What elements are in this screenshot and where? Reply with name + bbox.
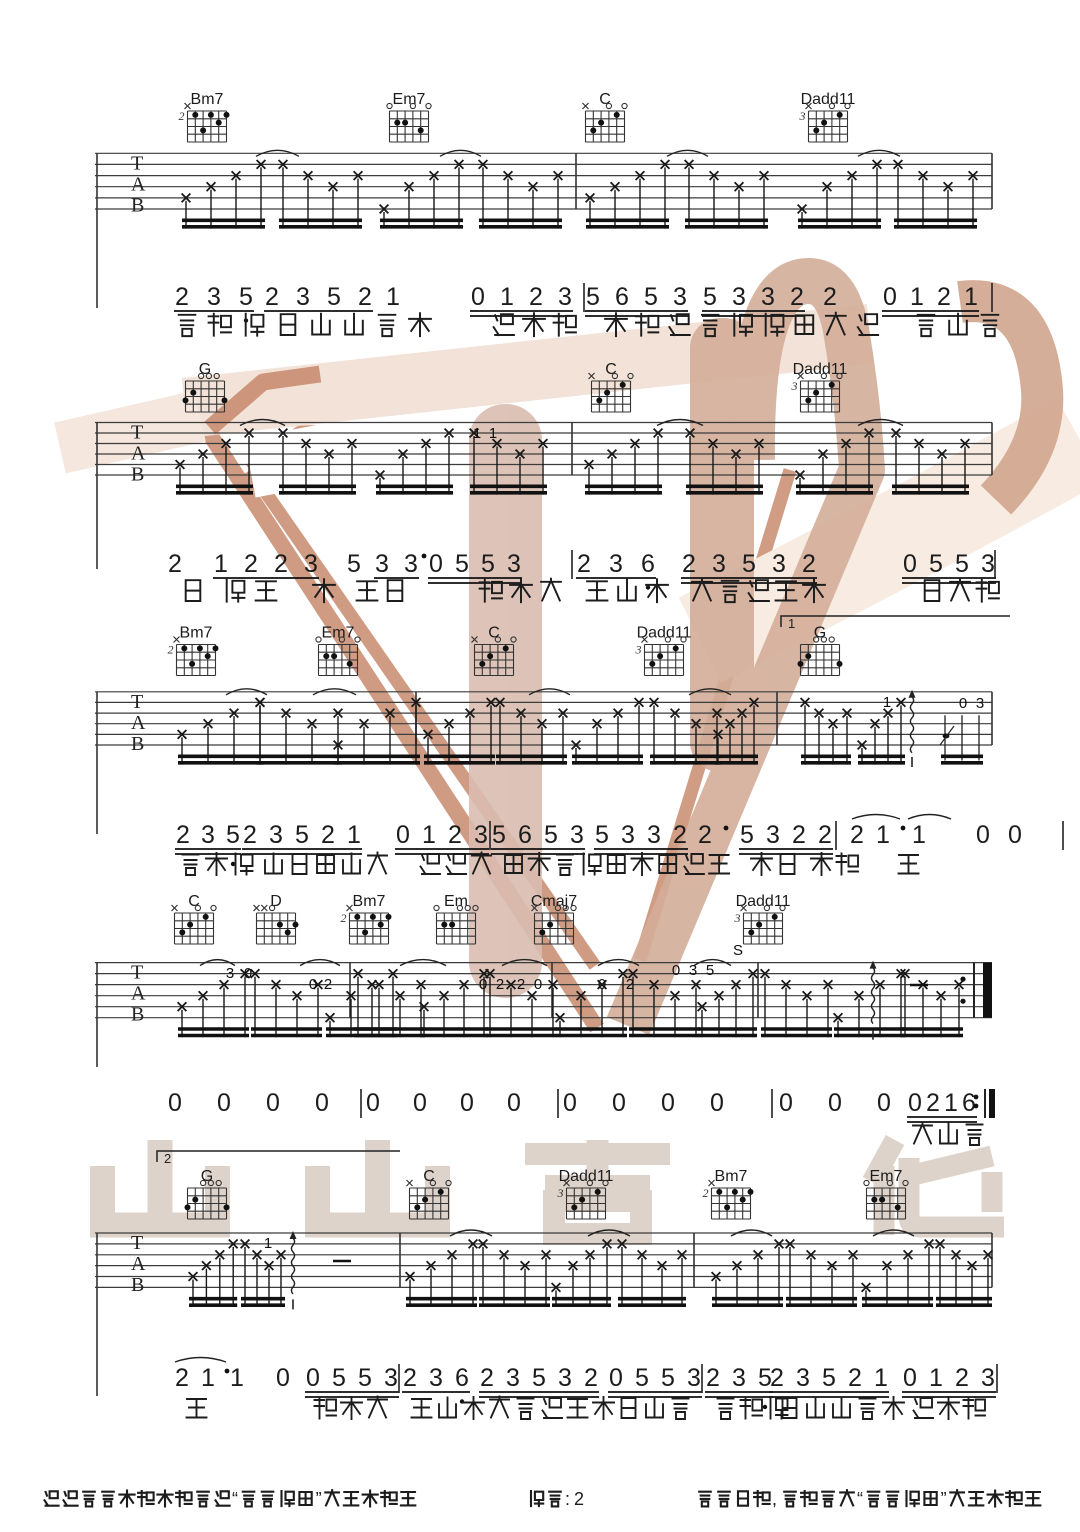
- svg-text:A: A: [131, 1253, 146, 1275]
- svg-text:0: 0: [266, 1089, 280, 1117]
- svg-text:B: B: [131, 194, 144, 216]
- svg-text:5: 5: [742, 550, 756, 578]
- svg-text:1: 1: [386, 283, 400, 311]
- svg-text:1: 1: [347, 821, 361, 849]
- svg-text:2: 2: [584, 1364, 598, 1392]
- svg-text:0: 0: [908, 1089, 922, 1117]
- svg-text:1: 1: [201, 1364, 215, 1392]
- svg-text:3: 3: [976, 695, 984, 712]
- svg-text:6: 6: [615, 283, 629, 311]
- svg-text:2: 2: [802, 550, 816, 578]
- svg-text:A: A: [131, 712, 146, 734]
- svg-text:3: 3: [474, 821, 488, 849]
- svg-text:1: 1: [214, 550, 228, 578]
- svg-text:5: 5: [644, 283, 658, 311]
- svg-text:2: 2: [265, 283, 279, 311]
- svg-text:2: 2: [574, 1489, 584, 1509]
- svg-text:0: 0: [168, 1089, 182, 1117]
- svg-text::: :: [565, 1489, 570, 1509]
- svg-text:Cmaj7: Cmaj7: [531, 893, 577, 910]
- svg-text:3: 3: [384, 1364, 398, 1392]
- svg-text:2: 2: [480, 1364, 494, 1392]
- svg-text:,: ,: [772, 1489, 777, 1509]
- svg-text:Em7: Em7: [870, 1168, 903, 1185]
- svg-text:2: 2: [682, 550, 696, 578]
- svg-text:0: 0: [612, 1089, 626, 1117]
- svg-text:3: 3: [558, 283, 572, 311]
- svg-text:3: 3: [570, 821, 584, 849]
- svg-text:5: 5: [327, 283, 341, 311]
- svg-text:0: 0: [959, 695, 967, 712]
- svg-text:3: 3: [269, 821, 283, 849]
- svg-text:2: 2: [850, 821, 864, 849]
- svg-text:2: 2: [164, 1151, 171, 1166]
- svg-text:2: 2: [792, 821, 806, 849]
- svg-text:0: 0: [779, 1089, 793, 1117]
- svg-text:D: D: [270, 893, 282, 910]
- svg-text:3: 3: [796, 1364, 810, 1392]
- svg-text:0: 0: [877, 1089, 891, 1117]
- svg-text:3: 3: [687, 1364, 701, 1392]
- svg-text:3: 3: [732, 283, 746, 311]
- svg-text:0: 0: [1008, 821, 1022, 849]
- svg-text:3: 3: [647, 821, 661, 849]
- svg-text:0: 0: [429, 550, 443, 578]
- svg-text:2: 2: [321, 821, 335, 849]
- svg-text:2: 2: [848, 1364, 862, 1392]
- svg-text:1: 1: [910, 283, 924, 311]
- svg-text:5: 5: [226, 821, 240, 849]
- svg-text:3: 3: [507, 550, 521, 578]
- svg-text:1: 1: [489, 425, 497, 442]
- svg-text:”: ”: [316, 1489, 322, 1509]
- svg-text:2: 2: [179, 109, 185, 123]
- svg-text:2: 2: [243, 821, 257, 849]
- svg-text:T: T: [131, 422, 143, 444]
- svg-text:3: 3: [404, 550, 418, 578]
- svg-text:5: 5: [492, 821, 506, 849]
- svg-text:Bm7: Bm7: [191, 91, 224, 108]
- svg-text:1: 1: [876, 821, 890, 849]
- svg-text:2: 2: [703, 1186, 709, 1200]
- svg-text:Bm7: Bm7: [180, 625, 213, 642]
- svg-text:5: 5: [532, 1364, 546, 1392]
- svg-text:1: 1: [944, 1089, 958, 1117]
- svg-text:5: 5: [822, 1364, 836, 1392]
- svg-text:C: C: [599, 91, 611, 108]
- svg-text:0: 0: [903, 550, 917, 578]
- svg-text:T: T: [131, 152, 143, 174]
- svg-text:3: 3: [621, 821, 635, 849]
- svg-text:1: 1: [788, 616, 795, 631]
- svg-text:0: 0: [306, 1364, 320, 1392]
- svg-text:Em: Em: [444, 893, 468, 910]
- svg-text:3: 3: [761, 283, 775, 311]
- svg-text:3: 3: [772, 550, 786, 578]
- svg-text:0: 0: [315, 1089, 329, 1117]
- svg-text:2: 2: [926, 1089, 940, 1117]
- svg-text:5: 5: [481, 550, 495, 578]
- svg-text:3: 3: [506, 1364, 520, 1392]
- svg-text:5: 5: [358, 1364, 372, 1392]
- svg-text:0: 0: [661, 1089, 675, 1117]
- svg-text:Bm7: Bm7: [715, 1168, 748, 1185]
- svg-text:B: B: [131, 733, 144, 755]
- svg-text:0: 0: [710, 1089, 724, 1117]
- svg-text:5: 5: [295, 821, 309, 849]
- svg-text:2: 2: [176, 821, 190, 849]
- svg-text:0: 0: [460, 1089, 474, 1117]
- svg-text:3: 3: [304, 550, 318, 578]
- svg-text:1: 1: [912, 821, 926, 849]
- svg-text:Em7: Em7: [322, 625, 355, 642]
- svg-text:3: 3: [207, 283, 221, 311]
- svg-text:5: 5: [635, 1364, 649, 1392]
- svg-text:3: 3: [673, 283, 687, 311]
- svg-text:3: 3: [635, 643, 642, 657]
- svg-text:T: T: [131, 1232, 143, 1254]
- svg-text:A: A: [131, 443, 146, 465]
- svg-text:B: B: [131, 464, 144, 486]
- svg-text:G: G: [199, 361, 211, 378]
- svg-text:2: 2: [698, 821, 712, 849]
- svg-text:1: 1: [230, 1364, 244, 1392]
- svg-text:3: 3: [201, 821, 215, 849]
- svg-text:0: 0: [976, 821, 990, 849]
- svg-text:G: G: [201, 1168, 213, 1185]
- svg-text:5: 5: [332, 1364, 346, 1392]
- svg-text:2: 2: [496, 976, 504, 993]
- svg-text:2: 2: [529, 283, 543, 311]
- svg-text:2: 2: [818, 821, 832, 849]
- svg-text:2: 2: [577, 550, 591, 578]
- svg-text:2: 2: [955, 1364, 969, 1392]
- svg-text:2: 2: [706, 1364, 720, 1392]
- svg-text:3: 3: [799, 109, 806, 123]
- svg-text:0: 0: [471, 283, 485, 311]
- svg-text:2: 2: [168, 643, 174, 657]
- svg-text:2: 2: [626, 976, 634, 993]
- svg-text:3: 3: [689, 962, 697, 979]
- svg-text:3: 3: [557, 1186, 564, 1200]
- svg-text:1: 1: [929, 1364, 943, 1392]
- svg-text:2: 2: [448, 821, 462, 849]
- svg-text:2: 2: [175, 283, 189, 311]
- svg-text:2: 2: [341, 911, 347, 925]
- svg-text:5: 5: [740, 821, 754, 849]
- svg-text:0: 0: [217, 1089, 231, 1117]
- svg-text:“: “: [232, 1489, 238, 1509]
- svg-text:3: 3: [226, 965, 234, 982]
- svg-text:5: 5: [595, 821, 609, 849]
- svg-text:1: 1: [964, 283, 978, 311]
- svg-text:3: 3: [375, 550, 389, 578]
- svg-text:0: 0: [396, 821, 410, 849]
- svg-text:0: 0: [479, 976, 487, 993]
- svg-text:B: B: [131, 1004, 144, 1026]
- svg-text:“: “: [857, 1489, 863, 1509]
- svg-text:0: 0: [883, 283, 897, 311]
- svg-text:5: 5: [455, 550, 469, 578]
- svg-text:0: 0: [244, 965, 252, 982]
- svg-text:3: 3: [296, 283, 310, 311]
- svg-text:1: 1: [500, 283, 514, 311]
- svg-text:5: 5: [706, 962, 714, 979]
- svg-text:0: 0: [903, 1364, 917, 1392]
- svg-text:5: 5: [661, 1364, 675, 1392]
- svg-text:1: 1: [422, 821, 436, 849]
- svg-text:2: 2: [790, 283, 804, 311]
- svg-text:0: 0: [609, 1364, 623, 1392]
- svg-text:2: 2: [324, 976, 332, 993]
- svg-text:5: 5: [239, 283, 253, 311]
- svg-text:A: A: [131, 983, 146, 1005]
- svg-text:2: 2: [823, 283, 837, 311]
- svg-text:3: 3: [981, 550, 995, 578]
- svg-text:1: 1: [264, 1235, 272, 1252]
- svg-text:1: 1: [883, 694, 891, 711]
- svg-text:1: 1: [874, 1364, 888, 1392]
- svg-text:G: G: [814, 625, 826, 642]
- svg-text:2: 2: [517, 976, 525, 993]
- svg-text:0: 0: [598, 976, 606, 993]
- svg-text:2: 2: [770, 1364, 784, 1392]
- svg-text:0: 0: [507, 1089, 521, 1117]
- svg-text:3: 3: [609, 550, 623, 578]
- svg-text:2: 2: [168, 550, 182, 578]
- svg-text:2: 2: [673, 821, 687, 849]
- svg-text:”: ”: [941, 1489, 947, 1509]
- svg-text:0: 0: [366, 1089, 380, 1117]
- svg-text:2: 2: [175, 1364, 189, 1392]
- svg-text:2: 2: [937, 283, 951, 311]
- svg-text:0: 0: [309, 976, 317, 993]
- svg-text:0: 0: [534, 976, 542, 993]
- svg-text:C: C: [488, 625, 500, 642]
- svg-text:3: 3: [712, 550, 726, 578]
- svg-text:T: T: [131, 691, 143, 713]
- svg-text:C: C: [423, 1168, 435, 1185]
- svg-text:3: 3: [734, 911, 741, 925]
- svg-text:3: 3: [558, 1364, 572, 1392]
- svg-text:2: 2: [403, 1364, 417, 1392]
- svg-text:S: S: [733, 942, 743, 959]
- svg-text:C: C: [605, 361, 617, 378]
- svg-text:6: 6: [962, 1089, 976, 1117]
- svg-text:5: 5: [544, 821, 558, 849]
- svg-text:5: 5: [955, 550, 969, 578]
- svg-text:3: 3: [791, 379, 798, 393]
- svg-text:Bm7: Bm7: [353, 893, 386, 910]
- svg-text:3: 3: [429, 1364, 443, 1392]
- svg-text:5: 5: [586, 283, 600, 311]
- svg-text:0: 0: [672, 962, 680, 979]
- svg-text:3: 3: [981, 1364, 995, 1392]
- svg-text:2: 2: [358, 283, 372, 311]
- svg-text:1: 1: [473, 425, 481, 442]
- svg-text:0: 0: [563, 1089, 577, 1117]
- svg-text:6: 6: [455, 1364, 469, 1392]
- svg-text:B: B: [131, 1274, 144, 1296]
- svg-text:3: 3: [766, 821, 780, 849]
- svg-text:5: 5: [347, 550, 361, 578]
- svg-text:6: 6: [518, 821, 532, 849]
- svg-text:T: T: [131, 962, 143, 984]
- svg-text:C: C: [188, 893, 200, 910]
- svg-text:5: 5: [929, 550, 943, 578]
- svg-text:5: 5: [703, 283, 717, 311]
- svg-text:2: 2: [274, 550, 288, 578]
- svg-text:A: A: [131, 173, 146, 195]
- svg-text:2: 2: [244, 550, 258, 578]
- svg-text:6: 6: [641, 550, 655, 578]
- svg-text:0: 0: [413, 1089, 427, 1117]
- svg-text:0: 0: [276, 1364, 290, 1392]
- svg-text:Em7: Em7: [393, 91, 426, 108]
- svg-text:3: 3: [732, 1364, 746, 1392]
- svg-text:0: 0: [828, 1089, 842, 1117]
